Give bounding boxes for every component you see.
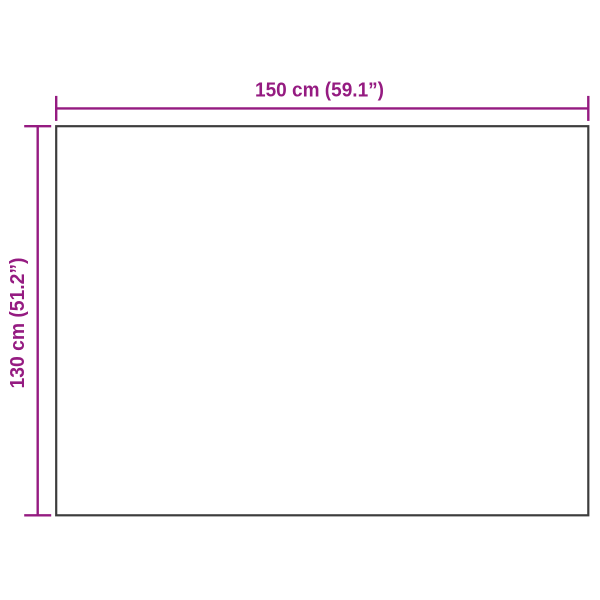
svg-text:130 cm (51.2”): 130 cm (51.2”): [7, 258, 29, 389]
svg-text:150 cm (59.1”): 150 cm (59.1”): [255, 79, 384, 101]
